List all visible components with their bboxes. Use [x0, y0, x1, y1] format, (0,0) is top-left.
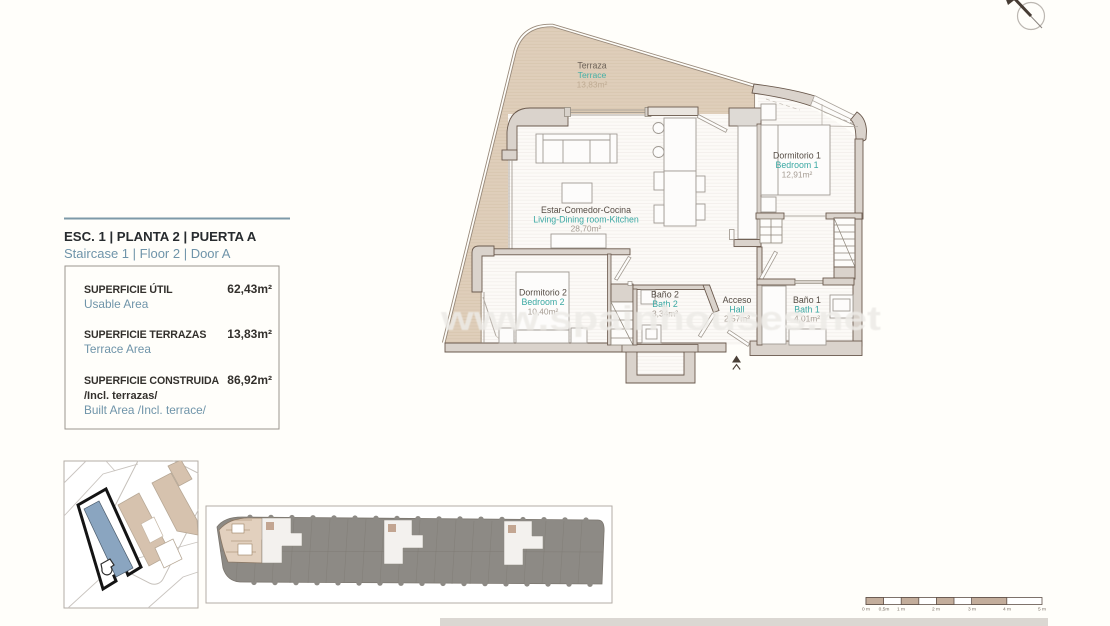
svg-text:1 m: 1 m — [897, 607, 905, 613]
svg-text:13,83m²: 13,83m² — [577, 80, 608, 90]
svg-text:62,43m²: 62,43m² — [227, 282, 272, 296]
svg-text:Bedroom 1: Bedroom 1 — [775, 160, 818, 170]
svg-text:4 m: 4 m — [1003, 607, 1011, 613]
svg-text:5 m: 5 m — [1038, 607, 1046, 613]
svg-text:SUPERFICIE ÚTIL: SUPERFICIE ÚTIL — [84, 283, 173, 296]
svg-text:Terraza: Terraza — [577, 61, 606, 71]
svg-text:Dormitorio 1: Dormitorio 1 — [773, 151, 821, 161]
svg-text:www.spainhouses.net: www.spainhouses.net — [440, 300, 881, 338]
svg-text:ESC. 1 | PLANTA 2 | PUERTA A: ESC. 1 | PLANTA 2 | PUERTA A — [64, 229, 257, 244]
svg-text:86,92m²: 86,92m² — [227, 373, 272, 387]
svg-text:3 m: 3 m — [968, 607, 976, 613]
svg-text:0 m: 0 m — [862, 607, 870, 613]
svg-text:Staircase 1 | Floor 2 | Door A: Staircase 1 | Floor 2 | Door A — [64, 246, 231, 261]
svg-text:Dormitorio 2: Dormitorio 2 — [519, 288, 567, 298]
svg-text:Usable Area: Usable Area — [84, 297, 149, 311]
svg-text:/Incl. terrazas/: /Incl. terrazas/ — [84, 390, 157, 402]
svg-text:28,70m²: 28,70m² — [571, 224, 602, 234]
svg-text:13,83m²: 13,83m² — [227, 327, 272, 341]
svg-text:12,91m²: 12,91m² — [782, 170, 813, 180]
svg-text:Estar-Comedor-Cocina: Estar-Comedor-Cocina — [541, 205, 631, 215]
svg-text:SUPERFICIE TERRAZAS: SUPERFICIE TERRAZAS — [84, 329, 206, 341]
svg-text:0,5m: 0,5m — [879, 607, 890, 613]
svg-text:Terrace Area: Terrace Area — [84, 342, 151, 356]
svg-text:Terrace: Terrace — [578, 70, 607, 80]
svg-text:Baño 2: Baño 2 — [651, 290, 679, 300]
svg-text:Built Area /Incl. terrace/: Built Area /Incl. terrace/ — [84, 403, 207, 417]
svg-text:SUPERFICIE CONSTRUIDA: SUPERFICIE CONSTRUIDA — [84, 375, 219, 387]
svg-text:2 m: 2 m — [932, 607, 940, 613]
